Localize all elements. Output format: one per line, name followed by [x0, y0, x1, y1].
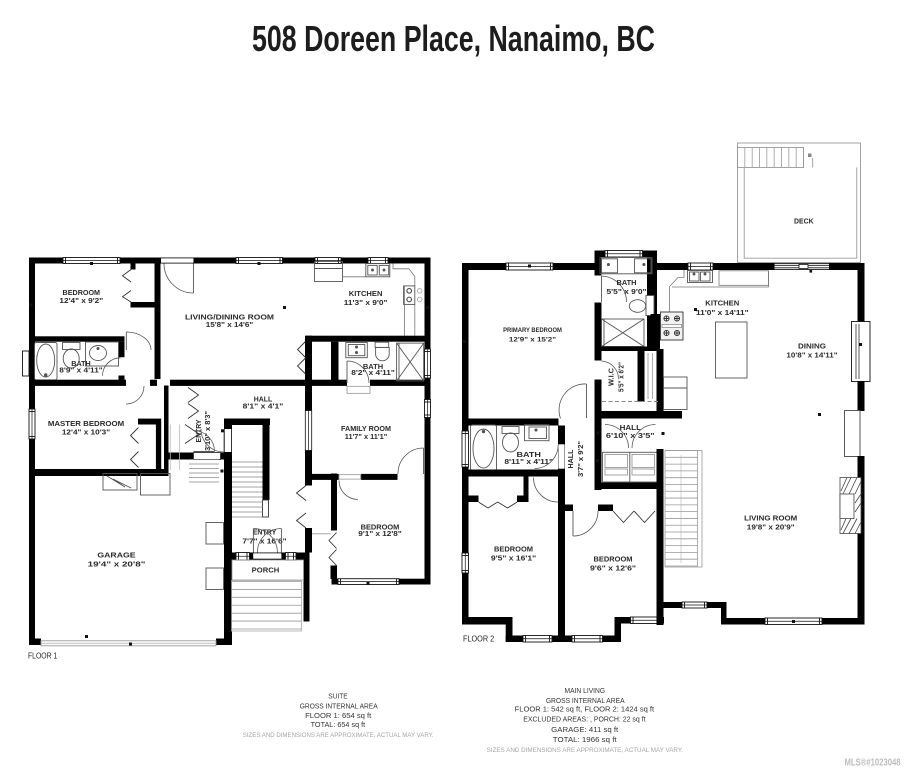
svg-text:5'5" x 9'0": 5'5" x 9'0" [607, 287, 648, 296]
svg-text:12'4" x 10'3": 12'4" x 10'3" [62, 428, 111, 437]
svg-text:FLOOR 1: 542 sq ft, FLOOR 2: 1: FLOOR 1: 542 sq ft, FLOOR 2: 1424 sq ft [515, 705, 655, 714]
svg-text:11'3" x 9'0": 11'3" x 9'0" [344, 298, 388, 307]
svg-text:GROSS INTERNAL AREA: GROSS INTERNAL AREA [300, 701, 378, 710]
svg-text:12'9" x 15'2": 12'9" x 15'2" [509, 336, 556, 343]
svg-text:FLOOR 1: 654 sq ft: FLOOR 1: 654 sq ft [305, 711, 371, 720]
svg-text:SIZES AND DIMENSIONS ARE APPRO: SIZES AND DIMENSIONS ARE APPROXIMATE, AC… [243, 732, 434, 739]
svg-text:SIZES AND DIMENSIONS ARE APPRO: SIZES AND DIMENSIONS ARE APPROXIMATE, AC… [487, 747, 683, 754]
svg-text:9'6" x 12'6": 9'6" x 12'6" [590, 563, 637, 572]
svg-text:508 Doreen Place, Nanaimo, BC: 508 Doreen Place, Nanaimo, BC [252, 18, 655, 59]
svg-text:LIVING ROOM: LIVING ROOM [744, 514, 797, 523]
svg-text:15'8" x 14'6": 15'8" x 14'6" [206, 320, 254, 329]
svg-text:BATH: BATH [617, 278, 637, 287]
svg-text:GARAGE: GARAGE [97, 551, 135, 560]
svg-text:GARAGE: 411 sq ft: GARAGE: 411 sq ft [551, 725, 618, 734]
svg-text:11'7" x 11'1": 11'7" x 11'1" [345, 432, 388, 441]
svg-text:W.I.C: W.I.C [607, 368, 616, 386]
svg-text:KITCHEN: KITCHEN [705, 299, 739, 308]
svg-text:8'2" x 4'11": 8'2" x 4'11" [351, 368, 395, 377]
svg-text:7'7" x 16'6": 7'7" x 16'6" [242, 536, 287, 545]
svg-text:PRIMARY BEDROOM: PRIMARY BEDROOM [503, 327, 562, 334]
svg-text:DECK: DECK [794, 217, 814, 226]
svg-text:9'5" x 16'1": 9'5" x 16'1" [491, 554, 537, 563]
svg-text:8'11" x 4'11": 8'11" x 4'11" [504, 457, 553, 466]
svg-text:19'4" x 20'8": 19'4" x 20'8" [88, 559, 146, 568]
svg-text:EXCLUDED AREAS: , PORCH: 22 sq: EXCLUDED AREAS: , PORCH: 22 sq ft [523, 715, 645, 724]
svg-text:TOTAL: 654 sq ft: TOTAL: 654 sq ft [311, 720, 366, 729]
svg-text:SUITE: SUITE [328, 691, 348, 700]
svg-text:TOTAL: 1966 sq ft: TOTAL: 1966 sq ft [553, 735, 617, 744]
svg-text:FLOOR 2: FLOOR 2 [463, 634, 495, 644]
svg-text:HALL: HALL [566, 449, 575, 469]
svg-text:FLOOR 1: FLOOR 1 [28, 650, 58, 660]
svg-text:8'1" x 4'1": 8'1" x 4'1" [243, 401, 284, 410]
svg-text:3'7" x 9'2": 3'7" x 9'2" [576, 441, 585, 477]
svg-text:10'8" x 14'11": 10'8" x 14'11" [786, 351, 838, 360]
svg-text:MAIN LIVING: MAIN LIVING [565, 686, 606, 695]
svg-text:MLS®#1023048: MLS®#1023048 [845, 757, 901, 768]
svg-text:5'5" x 6'2": 5'5" x 6'2" [617, 362, 626, 392]
svg-text:6'10" x 3'5": 6'10" x 3'5" [606, 431, 655, 440]
svg-text:BEDROOM: BEDROOM [594, 554, 633, 563]
svg-text:BEDROOM: BEDROOM [494, 544, 533, 553]
svg-text:9'1" x 12'8": 9'1" x 12'8" [358, 529, 402, 538]
svg-text:8'9" x 4'11": 8'9" x 4'11" [59, 366, 103, 375]
svg-text:KITCHEN: KITCHEN [349, 289, 383, 298]
svg-text:PORCH: PORCH [252, 565, 280, 574]
svg-text:19'8" x 20'9": 19'8" x 20'9" [747, 523, 795, 532]
svg-text:12'4" x 9'2": 12'4" x 9'2" [59, 296, 103, 305]
svg-text:11'0" x 14'11": 11'0" x 14'11" [696, 308, 749, 317]
svg-text:DINING: DINING [798, 341, 826, 350]
